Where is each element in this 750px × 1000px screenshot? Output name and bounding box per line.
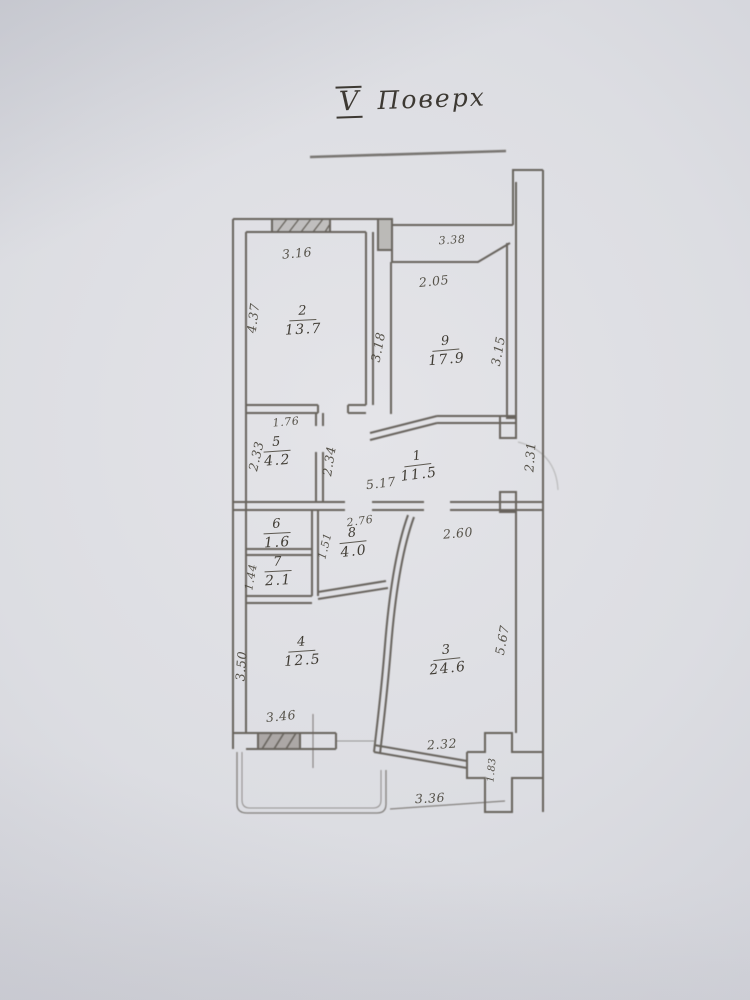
room-number: 6 <box>263 517 290 534</box>
room-label-4: 412.5 <box>282 634 321 669</box>
dimension-label: 3.18 <box>368 331 388 364</box>
room-label-5: 54.2 <box>263 435 292 469</box>
room-area: 13.7 <box>284 320 322 338</box>
dimension-label: 3.16 <box>281 244 312 262</box>
room-number: 5 <box>263 435 290 452</box>
room-area: 2.1 <box>265 572 293 589</box>
room-area: 4.0 <box>340 542 368 561</box>
room-number: 1 <box>403 448 431 467</box>
dimension-label: 3.46 <box>265 707 297 725</box>
dimension-label: 3.36 <box>415 790 446 807</box>
room-label-8: 84.0 <box>338 525 368 560</box>
scanned-floorplan-page: V Поверх 3.163.382.054.373.183.151.762.3… <box>0 0 750 1000</box>
room-area: 24.6 <box>429 658 468 678</box>
dimension-label: 5.67 <box>492 624 512 656</box>
room-number: 2 <box>289 304 316 321</box>
dimension-label: 2.32 <box>426 735 457 752</box>
dimension-label: 5.17 <box>365 474 397 493</box>
dimension-label: 4.37 <box>244 302 263 334</box>
dimension-label: 1.51 <box>315 531 334 560</box>
room-area: 1.6 <box>264 534 292 551</box>
dimension-label: 1.83 <box>485 757 498 783</box>
dimension-label: 3.15 <box>488 335 508 367</box>
room-label-6: 61.6 <box>263 517 291 551</box>
room-label-1: 111.5 <box>398 448 439 485</box>
room-label-3: 324.6 <box>427 642 467 678</box>
dimension-label: 2.34 <box>319 445 339 477</box>
dimension-label: 1.76 <box>272 414 300 429</box>
dimension-label: 2.31 <box>521 441 538 472</box>
dimension-label: 3.50 <box>232 650 249 681</box>
room-area: 17.9 <box>428 350 466 369</box>
dimension-label: 2.60 <box>442 524 473 542</box>
room-area: 11.5 <box>400 464 439 484</box>
room-number: 4 <box>288 635 315 652</box>
dimension-label: 1.44 <box>242 563 259 592</box>
room-number: 9 <box>431 334 459 352</box>
room-number: 8 <box>338 525 366 543</box>
room-area: 12.5 <box>283 651 321 670</box>
room-label-7: 72.1 <box>264 555 292 589</box>
room-number: 7 <box>264 555 291 572</box>
dimension-label: 3.38 <box>438 233 466 248</box>
room-area: 4.2 <box>264 451 292 469</box>
room-number: 3 <box>432 642 460 660</box>
dimension-label: 2.05 <box>418 272 450 290</box>
room-label-9: 917.9 <box>426 333 466 369</box>
plan-labels: 3.163.382.054.373.183.151.762.332.342.31… <box>0 0 750 1000</box>
room-label-2: 213.7 <box>284 304 323 339</box>
